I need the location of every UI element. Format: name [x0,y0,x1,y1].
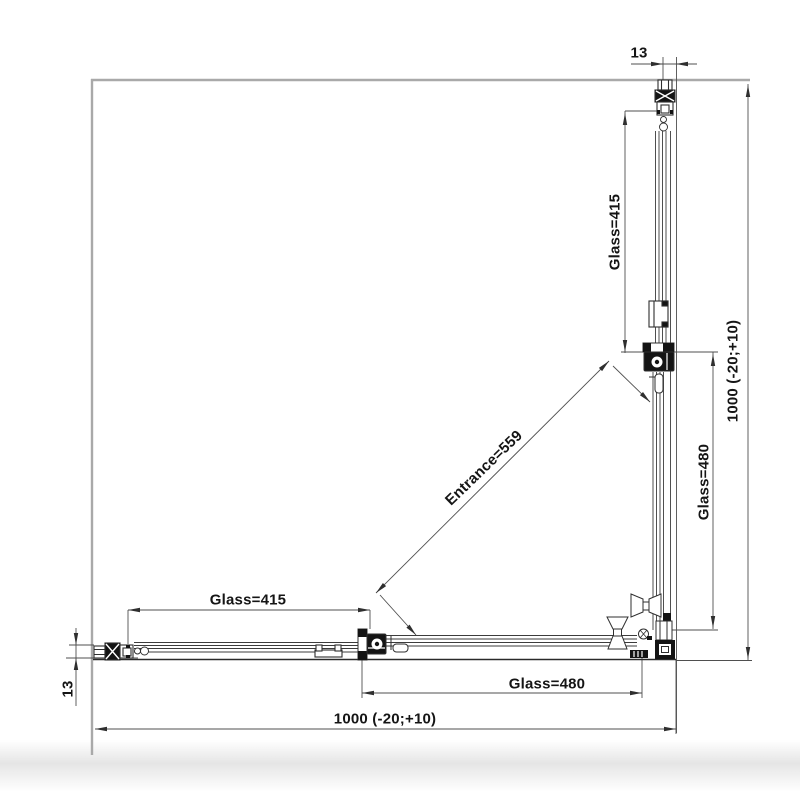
dim-label-top-thickness: 13 [630,45,647,62]
right-panel-clip [649,301,668,327]
dimension-arrowheads [74,62,750,731]
bottom-panel-clip [315,645,342,657]
dimension-lines [66,57,752,734]
right-door-knob [631,594,661,617]
dim-label-right-door-glass: Glass=480 [696,444,713,520]
bottom-door-knob [607,617,628,649]
dim-label-right-total: 1000 (-20;+10) [725,320,742,422]
right-door-hinge [643,343,674,393]
corner-post-assembly [630,613,675,659]
dim-label-right-fixed-glass: Glass=415 [607,194,624,270]
dim-label-bottom-door-glass: Glass=480 [509,676,585,693]
dim-label-bottom-fixed-glass: Glass=415 [210,592,286,609]
dim-label-left-thickness: 13 [60,680,77,697]
dim-label-bottom-total: 1000 (-20;+10) [334,711,436,728]
drawing-canvas: 13 13 1000 (-20;+10) 1000 (-20;+10) Glas… [0,0,800,800]
room-walls [91,79,750,755]
bottom-door-hinge [358,629,408,660]
shower-enclosure-plan-drawing [0,0,800,800]
top-wall-profile [655,80,675,131]
